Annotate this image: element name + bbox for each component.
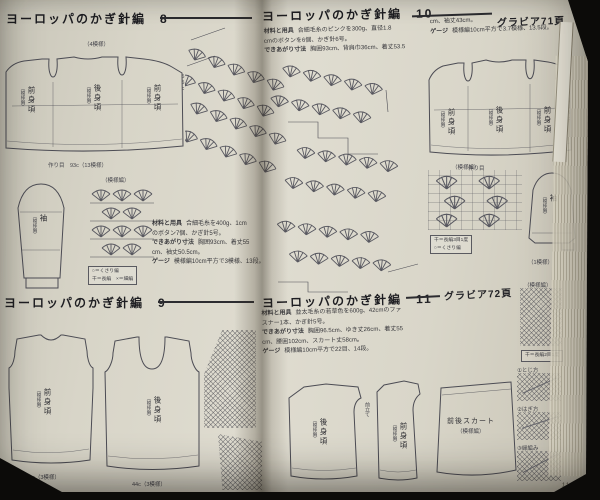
section-8-header: ヨーロッパのかぎ針編8 [6, 10, 169, 27]
section-10-header: ヨーロッパのかぎ針編10 [262, 5, 434, 25]
gauge-line: ゲージ模様編10cm平方で3模様、13段。 [152, 258, 265, 268]
chart-note-8: （模様編） [102, 176, 130, 184]
piece-label-back-8: 後身頃 （模様編） [86, 84, 103, 113]
section-9-title: ヨーロッパのかぎ針編 [4, 296, 144, 310]
section-8-rule [160, 17, 252, 19]
stitch-chart-mesh-9b [218, 434, 262, 490]
section-10-title: ヨーロッパのかぎ針編 [262, 7, 402, 23]
book-photo: { "series_title": "ヨーロッパのかぎ針編", "page": … [0, 0, 600, 500]
section-11-number: 11 [416, 292, 433, 306]
open-book: ヨーロッパのかぎ針編8 前身頃 （模様編） 後身頃 （模様編） 前身頃 （模様編… [0, 0, 588, 492]
piece-label-front-9: 前身頃 （模様編） [36, 388, 53, 417]
stitch-chart-8 [88, 184, 158, 264]
piece-label-back-11: 後身頃 （模様編） [312, 418, 329, 447]
section-9-rule [158, 301, 254, 303]
annotation-one-motif: （1模様） [528, 258, 553, 266]
stitch-legend-10: 干＝長編3目1度 ○＝くさり編 [430, 235, 472, 254]
spec-block-10-right: cm、袖丈43cm。 ゲージ模様編10cm平方で3.7模様、13.5段。 [430, 14, 553, 37]
finished-line-2: cm、袖丈50.5cm。 [152, 249, 265, 259]
section-9-number: 9 [158, 296, 167, 310]
piece-label-front-left-10: 前身頃 （模様編） [440, 108, 457, 137]
stitch-chart-grid-10-fans [428, 170, 522, 230]
piece-label-front-11: 前身頃 （模様編） [392, 422, 409, 451]
materials-line-2: のボタン7個、かぎ針5号。 [152, 230, 265, 240]
annotation-motif-count: （4模様） [84, 40, 109, 48]
annotation-placket: 前立て [364, 402, 371, 417]
gravure-ref-72: グラビア72頁 [444, 284, 513, 303]
piece-label-sleeve-8: 袖 （模様編） [32, 214, 49, 237]
annotation-cast-on-8: 作り目 93c（13模様） [48, 161, 107, 169]
stitch-chart-centre-lower [268, 212, 433, 302]
spec-block-8: 材料と用具合細毛糸を400g、1cm のボタン7個、かぎ針5号。 できあがり寸法… [152, 220, 265, 268]
materials-line-1: 材料と用具合細毛糸を400g、1cm [152, 220, 265, 230]
skirt-pattern-note: （模様編） [457, 427, 485, 435]
annotation-width-9b: 44c（3模様） [132, 480, 166, 488]
stitch-chart-centre-upper [268, 52, 438, 207]
finished-line-1: できあがり寸法胸囲93cm、着丈55 [152, 239, 265, 249]
spec-block-11: 材料と用具並太毛糸の若草色を600g、42cmのファ スナー1本、かぎ針5号。 … [261, 306, 403, 358]
schematic-sleeve-8 [6, 180, 80, 300]
piece-label-back-9: 後身頃 （模様編） [146, 396, 163, 425]
piece-label-back-10: 後身頃 （模様編） [488, 106, 505, 135]
section-8-title: ヨーロッパのかぎ針編 [6, 12, 146, 26]
stitch-chart-mesh-9 [204, 330, 256, 428]
section-8-number: 8 [160, 12, 169, 26]
page-number: 113 [562, 483, 575, 489]
piece-label-front-right-8: 前身頃 （模様編） [146, 84, 163, 113]
annotation-width-9a: 44c（3模様） [26, 473, 60, 481]
piece-label-skirt-11: 前後スカート [447, 416, 495, 426]
piece-label-front-right-10: 前身頃 （模様編） [536, 106, 553, 135]
stitch-legend-8: ○＝くさり編 干＝長編 ×＝細編 [88, 266, 137, 285]
piece-label-front-left-8: 前身頃 （模様編） [20, 86, 37, 115]
section-9-header: ヨーロッパのかぎ針編9 [4, 294, 167, 311]
